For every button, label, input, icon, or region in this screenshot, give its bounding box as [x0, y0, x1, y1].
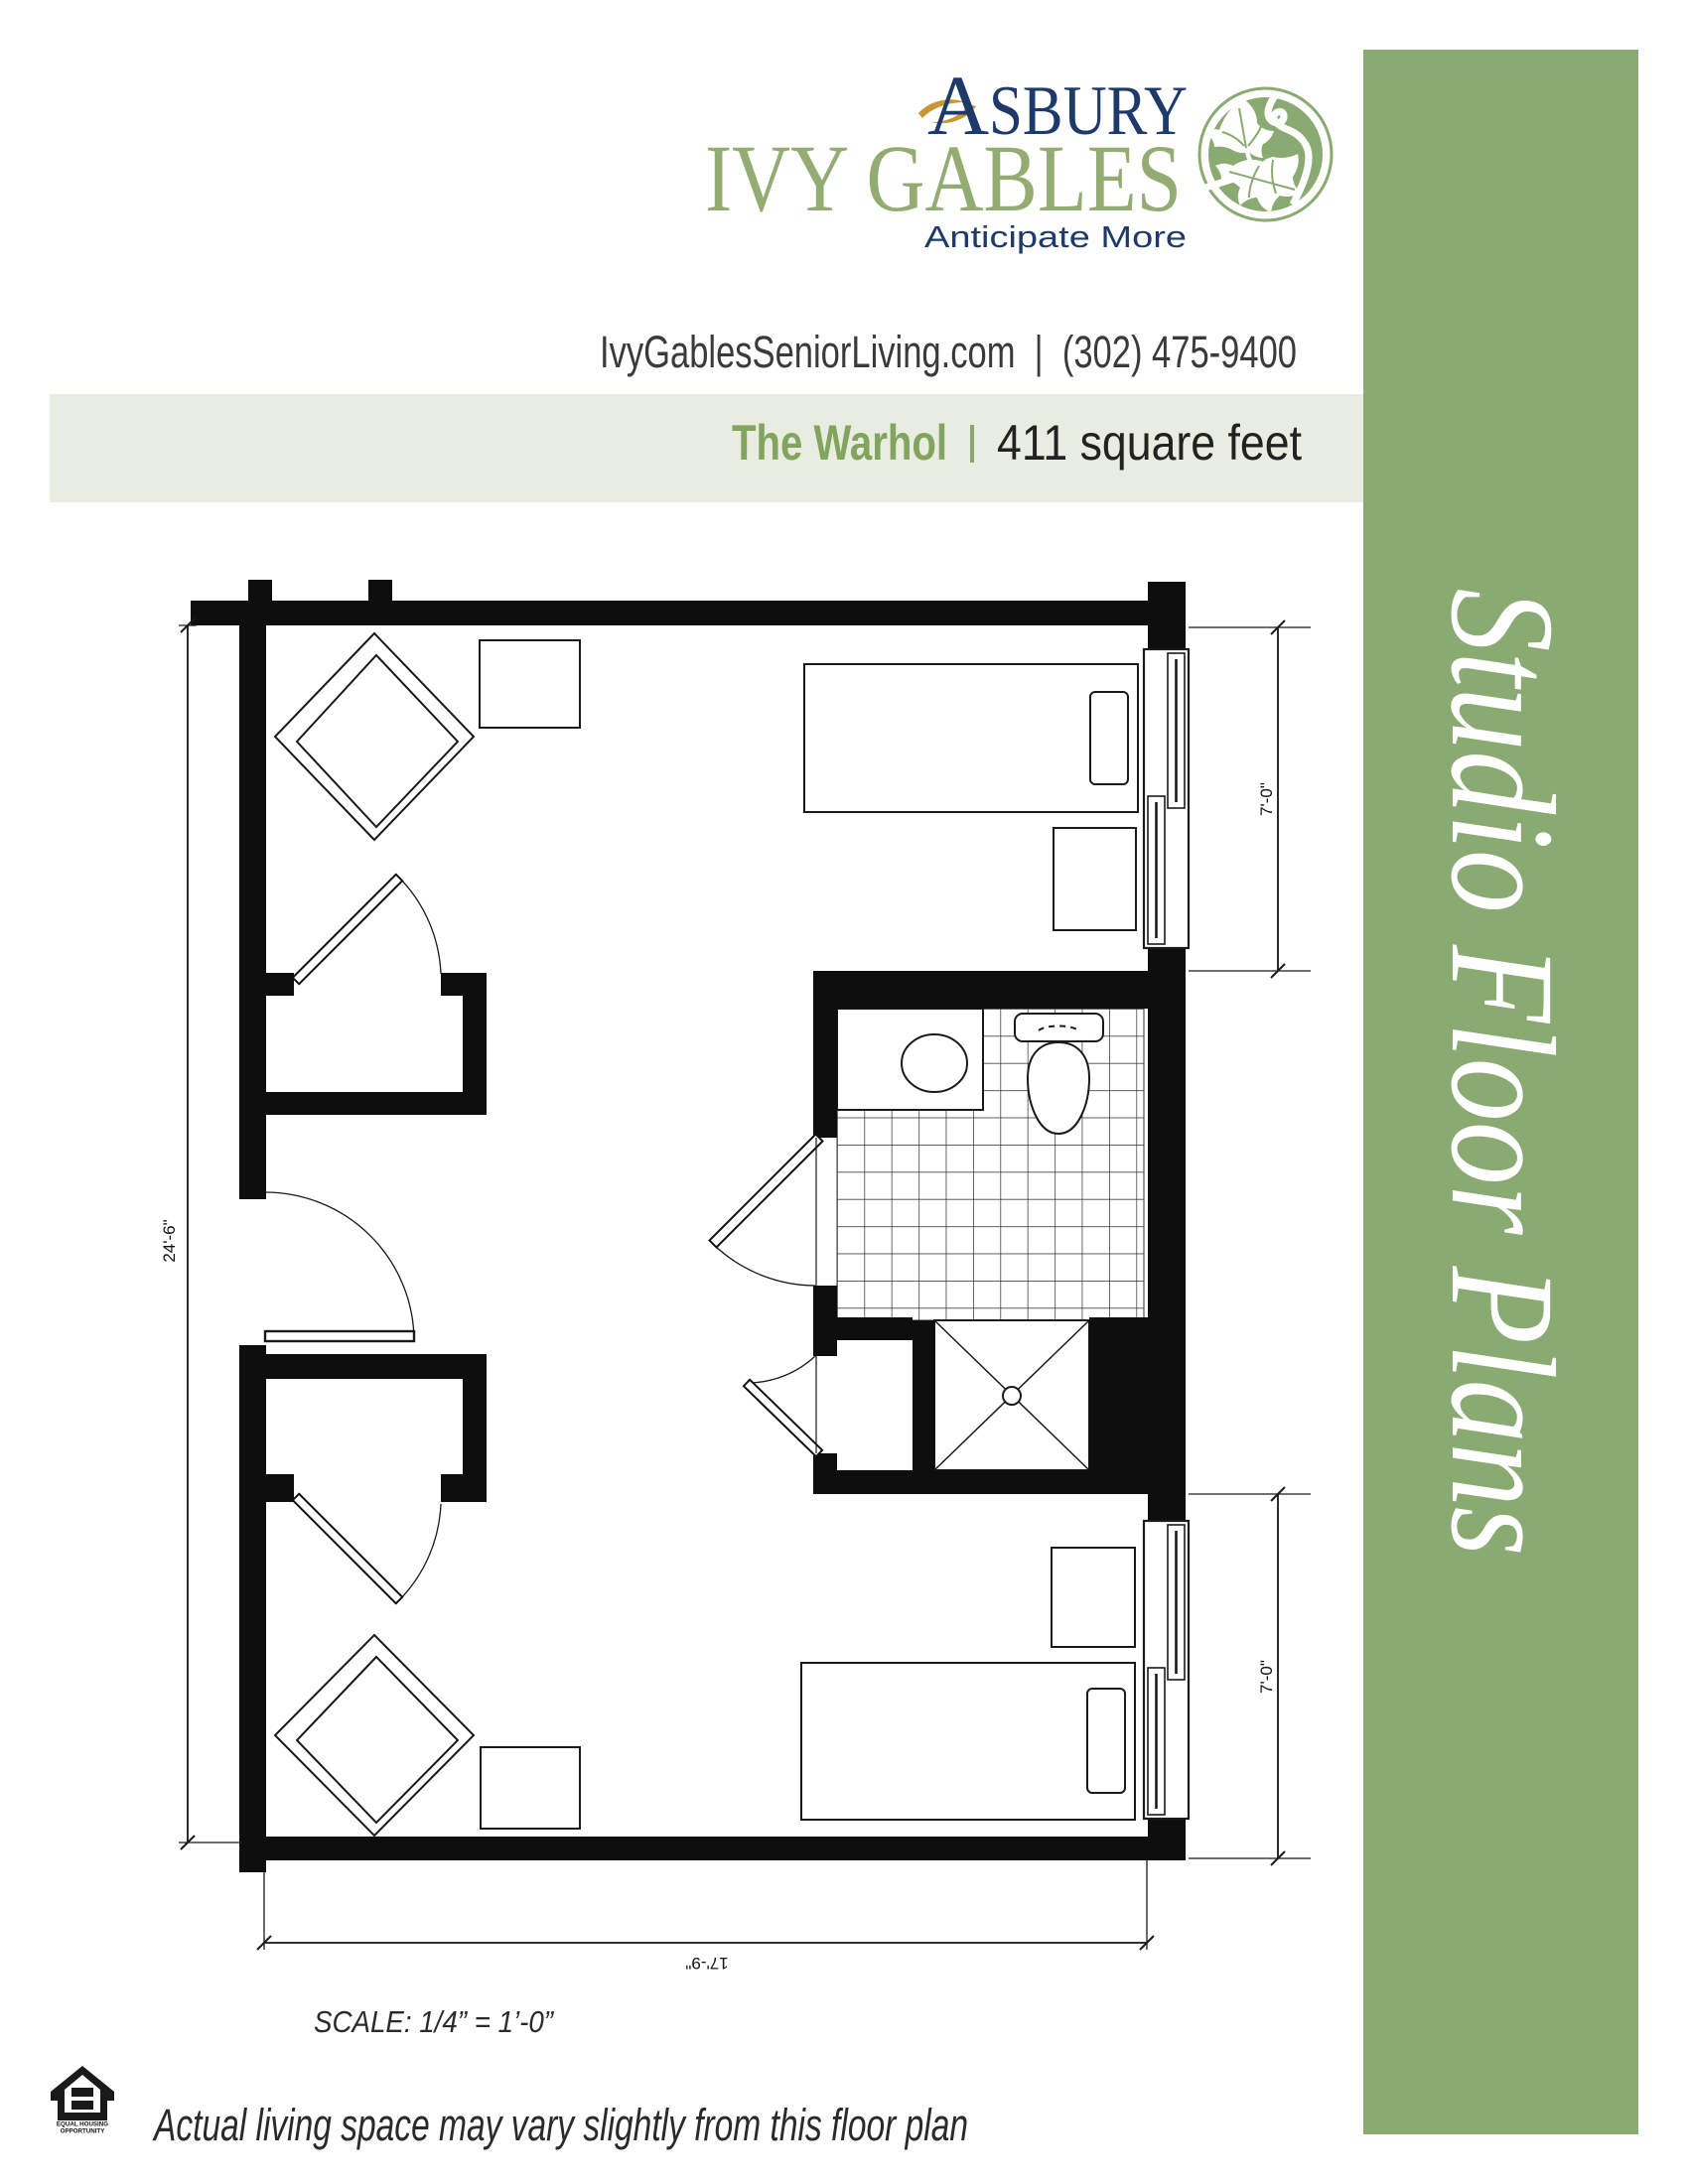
svg-text:24'-6": 24'-6" [160, 1219, 179, 1262]
svg-text:EQUAL HOUSING: EQUAL HOUSING [57, 2121, 108, 2128]
svg-text:7'-0": 7'-0" [1257, 1660, 1276, 1694]
svg-text:17'-9": 17'-9" [685, 1954, 728, 1973]
svg-text:SCALE: 1/4” = 1’-0”: SCALE: 1/4” = 1’-0” [314, 2004, 554, 2039]
svg-text:Actual living space may vary s: Actual living space may vary slightly fr… [152, 2100, 968, 2150]
svg-text:7'-0": 7'-0" [1257, 782, 1276, 816]
svg-text:OPPORTUNITY: OPPORTUNITY [61, 2128, 106, 2135]
